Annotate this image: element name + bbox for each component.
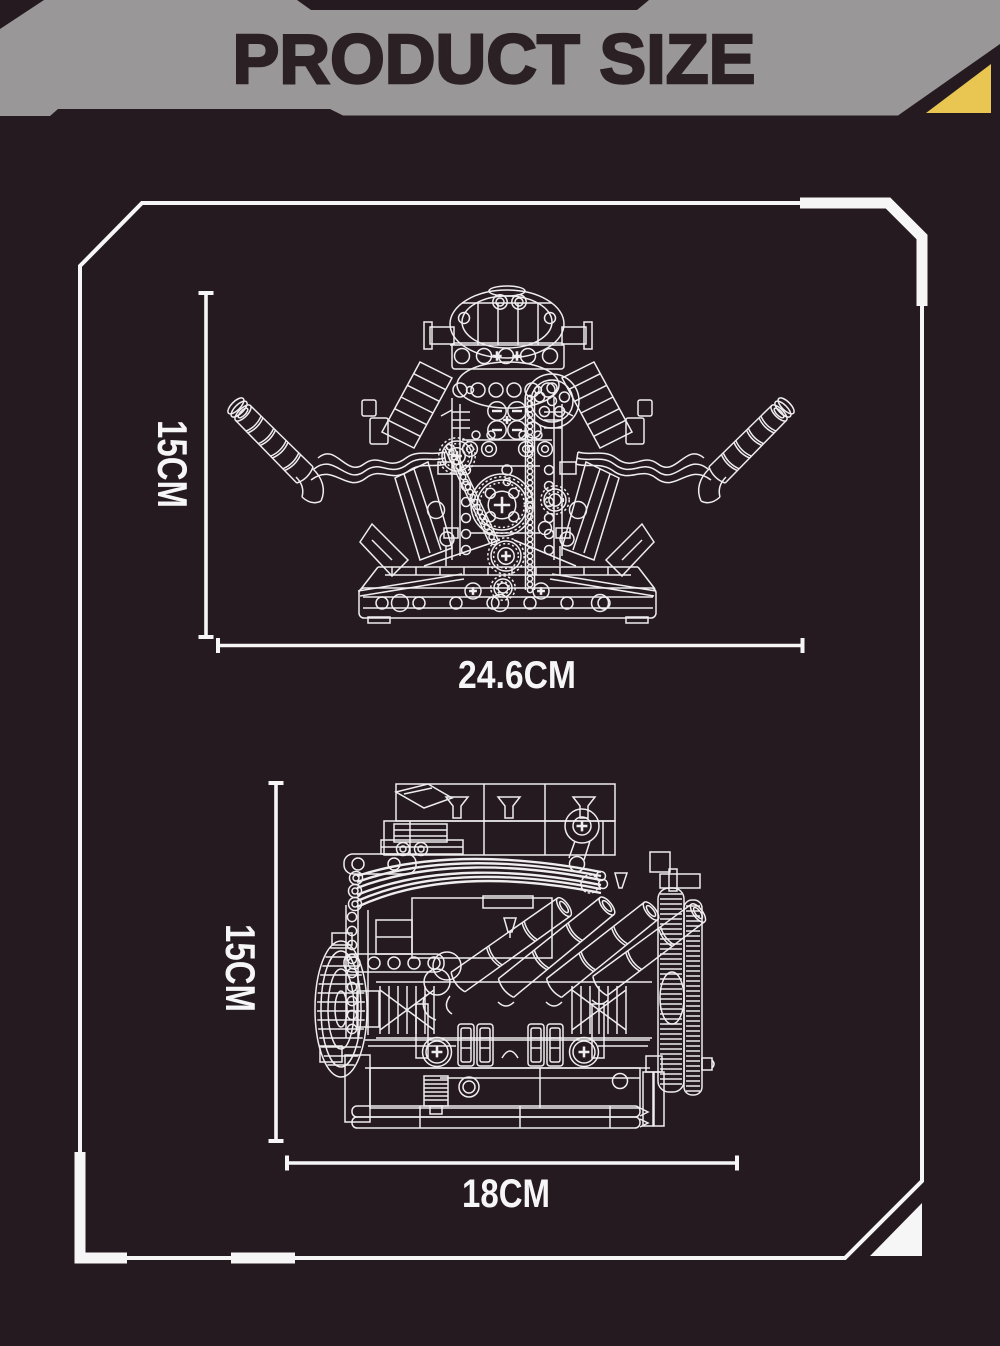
svg-text:15CM: 15CM	[217, 924, 264, 1012]
svg-text:18CM: 18CM	[462, 1172, 550, 1216]
svg-text:PRODUCT SIZE: PRODUCT SIZE	[233, 20, 756, 98]
svg-text:15CM: 15CM	[149, 420, 196, 508]
svg-text:24.6CM: 24.6CM	[458, 654, 576, 697]
